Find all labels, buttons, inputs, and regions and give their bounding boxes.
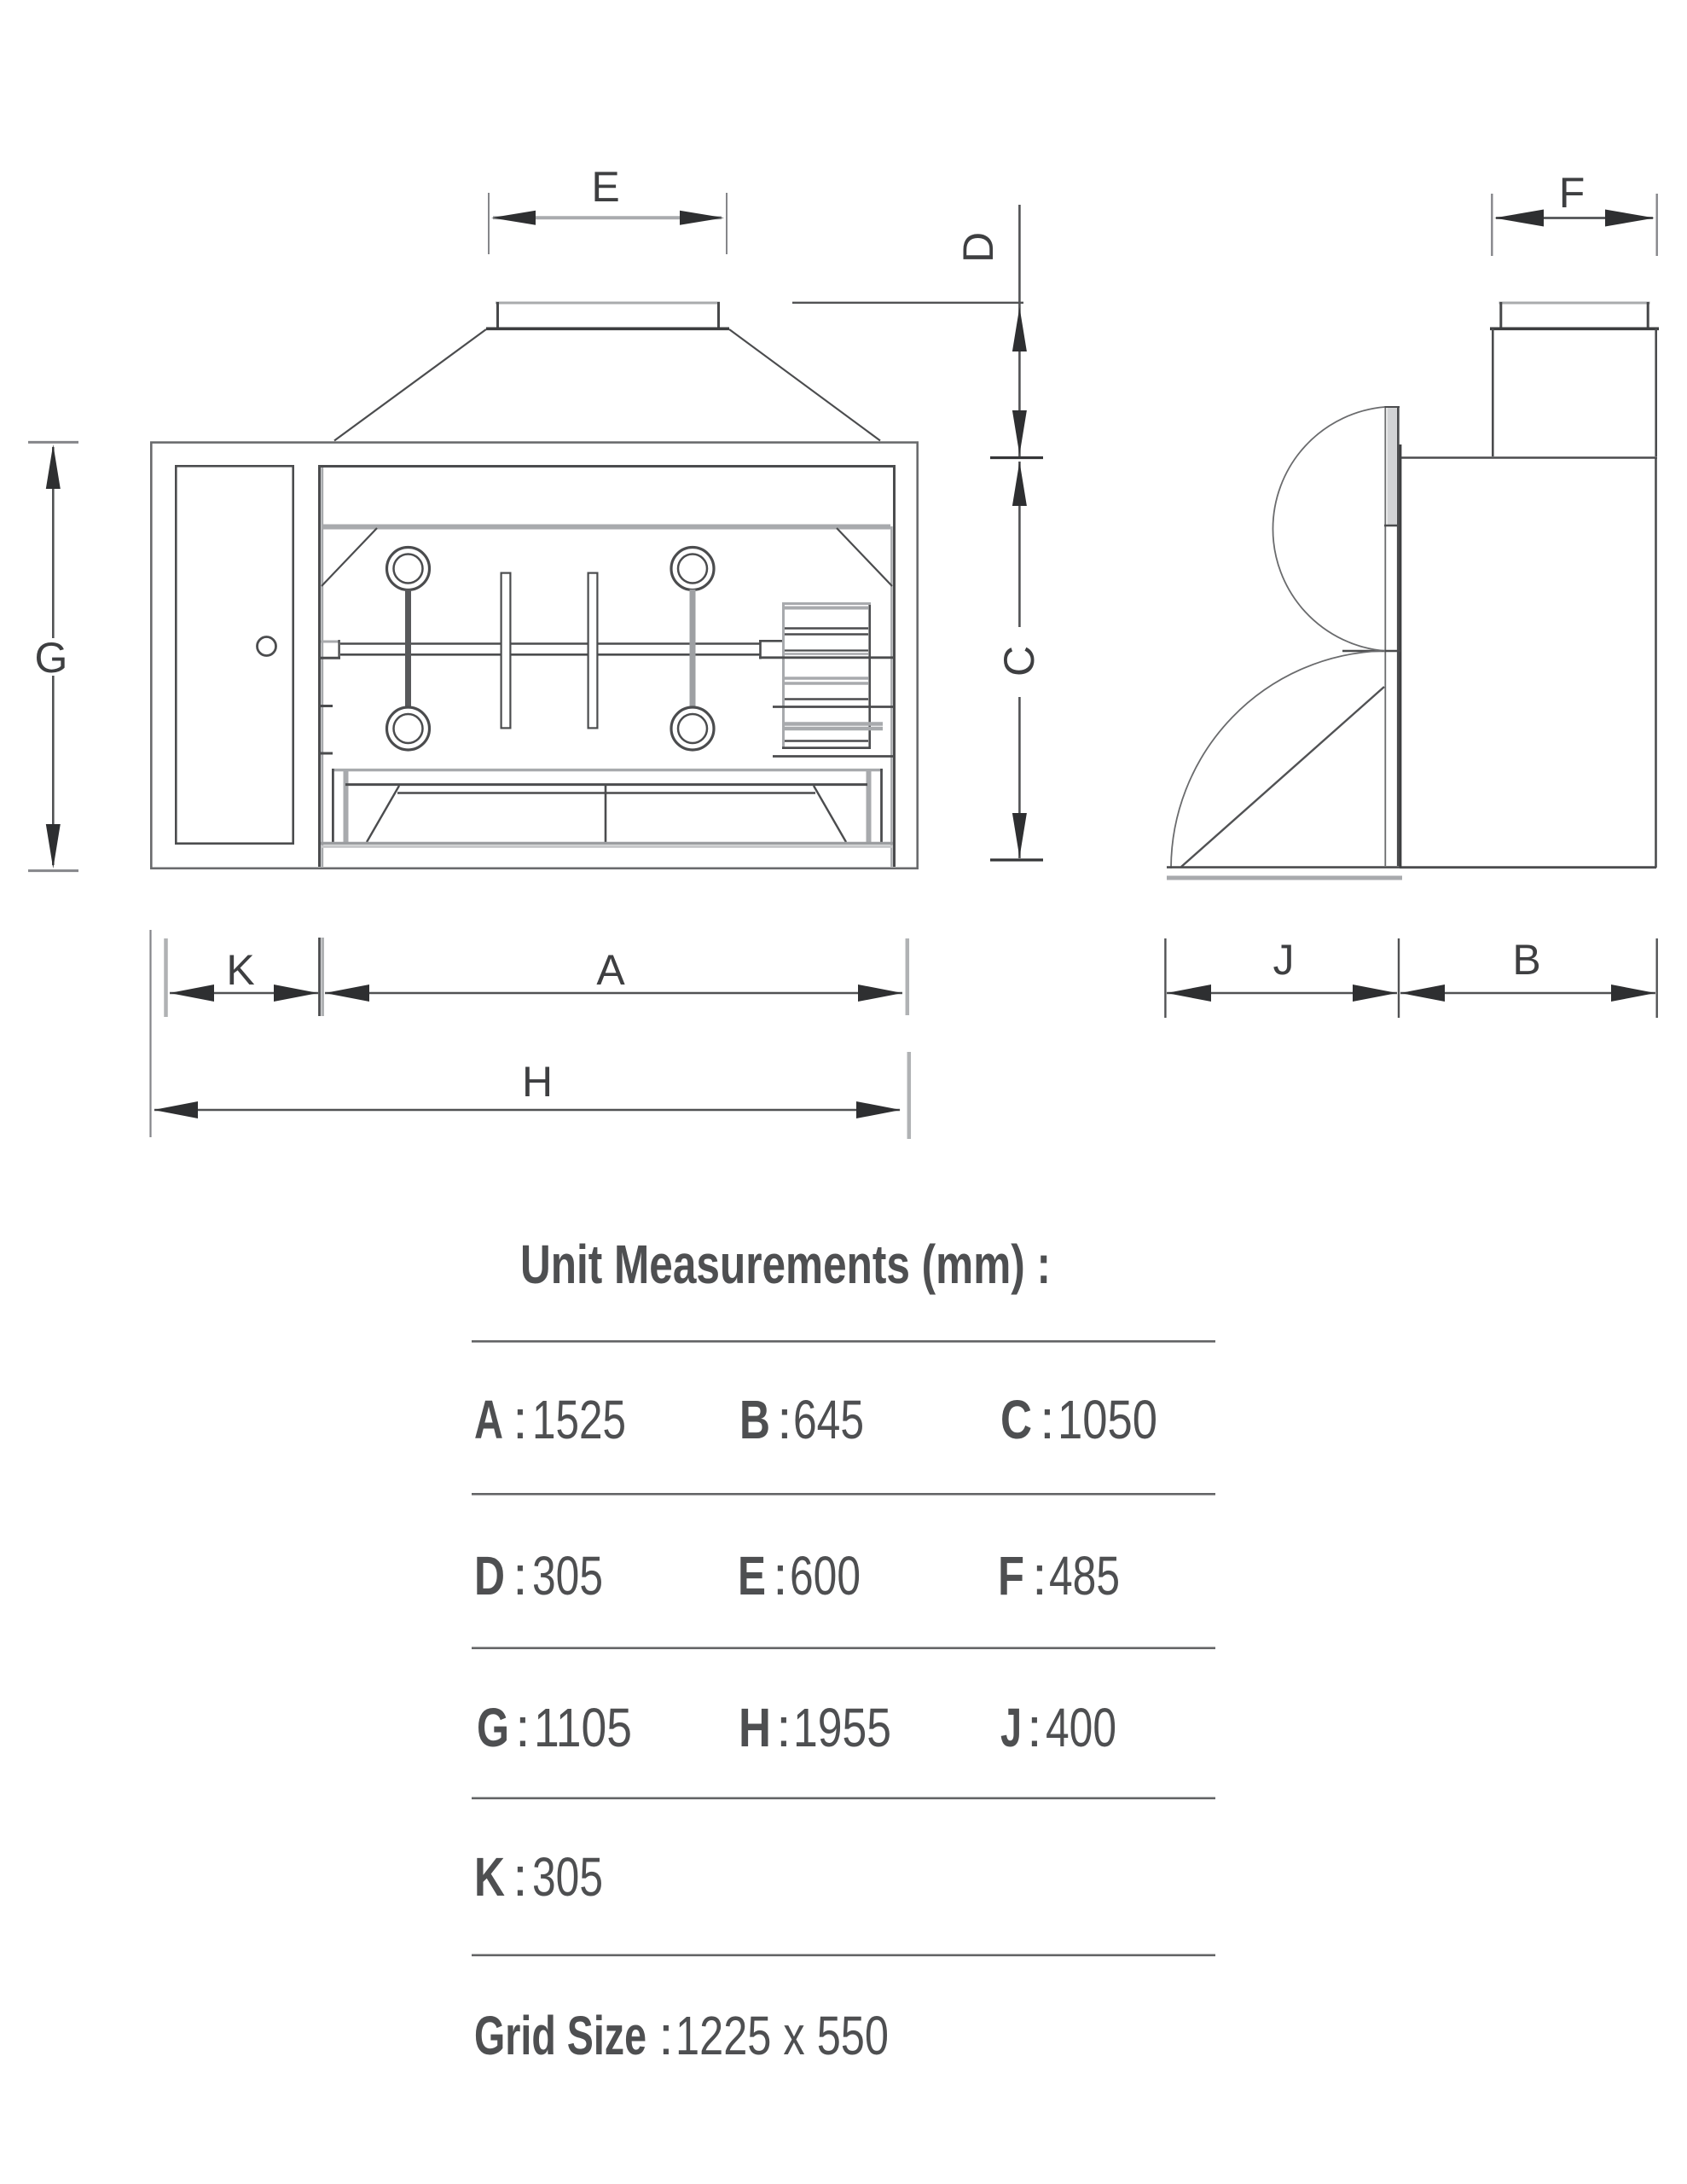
svg-text:A: A xyxy=(474,1389,503,1450)
svg-text:D: D xyxy=(954,232,1002,263)
svg-text:B: B xyxy=(1512,936,1540,984)
svg-text:E: E xyxy=(591,163,619,211)
svg-text:G: G xyxy=(35,634,68,682)
svg-text:600: 600 xyxy=(790,1545,861,1606)
svg-text:645: 645 xyxy=(793,1389,864,1450)
svg-text:1955: 1955 xyxy=(793,1697,891,1758)
svg-text:B: B xyxy=(739,1389,770,1450)
svg-text:J: J xyxy=(1273,936,1295,984)
svg-text:305: 305 xyxy=(532,1545,603,1606)
svg-text:305: 305 xyxy=(532,1846,603,1908)
svg-text::: : xyxy=(1027,1697,1042,1758)
svg-text:400: 400 xyxy=(1046,1697,1116,1758)
svg-text:D: D xyxy=(474,1545,505,1606)
svg-text:C: C xyxy=(995,646,1043,677)
svg-text::: : xyxy=(773,1545,788,1606)
svg-text:J: J xyxy=(1000,1697,1022,1758)
svg-text:H: H xyxy=(739,1697,771,1758)
svg-text::: : xyxy=(513,1846,528,1908)
svg-text:A: A xyxy=(596,946,625,994)
svg-text:F: F xyxy=(1559,169,1586,217)
svg-text::: : xyxy=(1040,1389,1055,1450)
svg-text:K: K xyxy=(474,1846,505,1908)
svg-text:E: E xyxy=(738,1545,766,1606)
svg-text:1105: 1105 xyxy=(534,1697,632,1758)
svg-text::: : xyxy=(1032,1545,1047,1606)
svg-text:F: F xyxy=(998,1545,1024,1606)
svg-text::: : xyxy=(776,1697,791,1758)
svg-text::: : xyxy=(513,1545,528,1606)
svg-text::: : xyxy=(515,1697,530,1758)
svg-text:H: H xyxy=(522,1058,553,1106)
svg-text:K: K xyxy=(226,946,254,994)
svg-text:485: 485 xyxy=(1049,1545,1120,1606)
svg-text:C: C xyxy=(1000,1389,1032,1450)
svg-text::: : xyxy=(513,1389,528,1450)
svg-text:Unit Measurements (mm) :: Unit Measurements (mm) : xyxy=(520,1234,1051,1295)
svg-text:Grid Size: Grid Size xyxy=(474,2005,646,2066)
svg-text::: : xyxy=(658,2005,674,2066)
svg-text:1525: 1525 xyxy=(532,1389,626,1450)
svg-text:1050: 1050 xyxy=(1058,1389,1157,1450)
svg-text:1225 x 550: 1225 x 550 xyxy=(675,2005,889,2066)
svg-text::: : xyxy=(777,1389,792,1450)
svg-text:G: G xyxy=(477,1697,509,1758)
